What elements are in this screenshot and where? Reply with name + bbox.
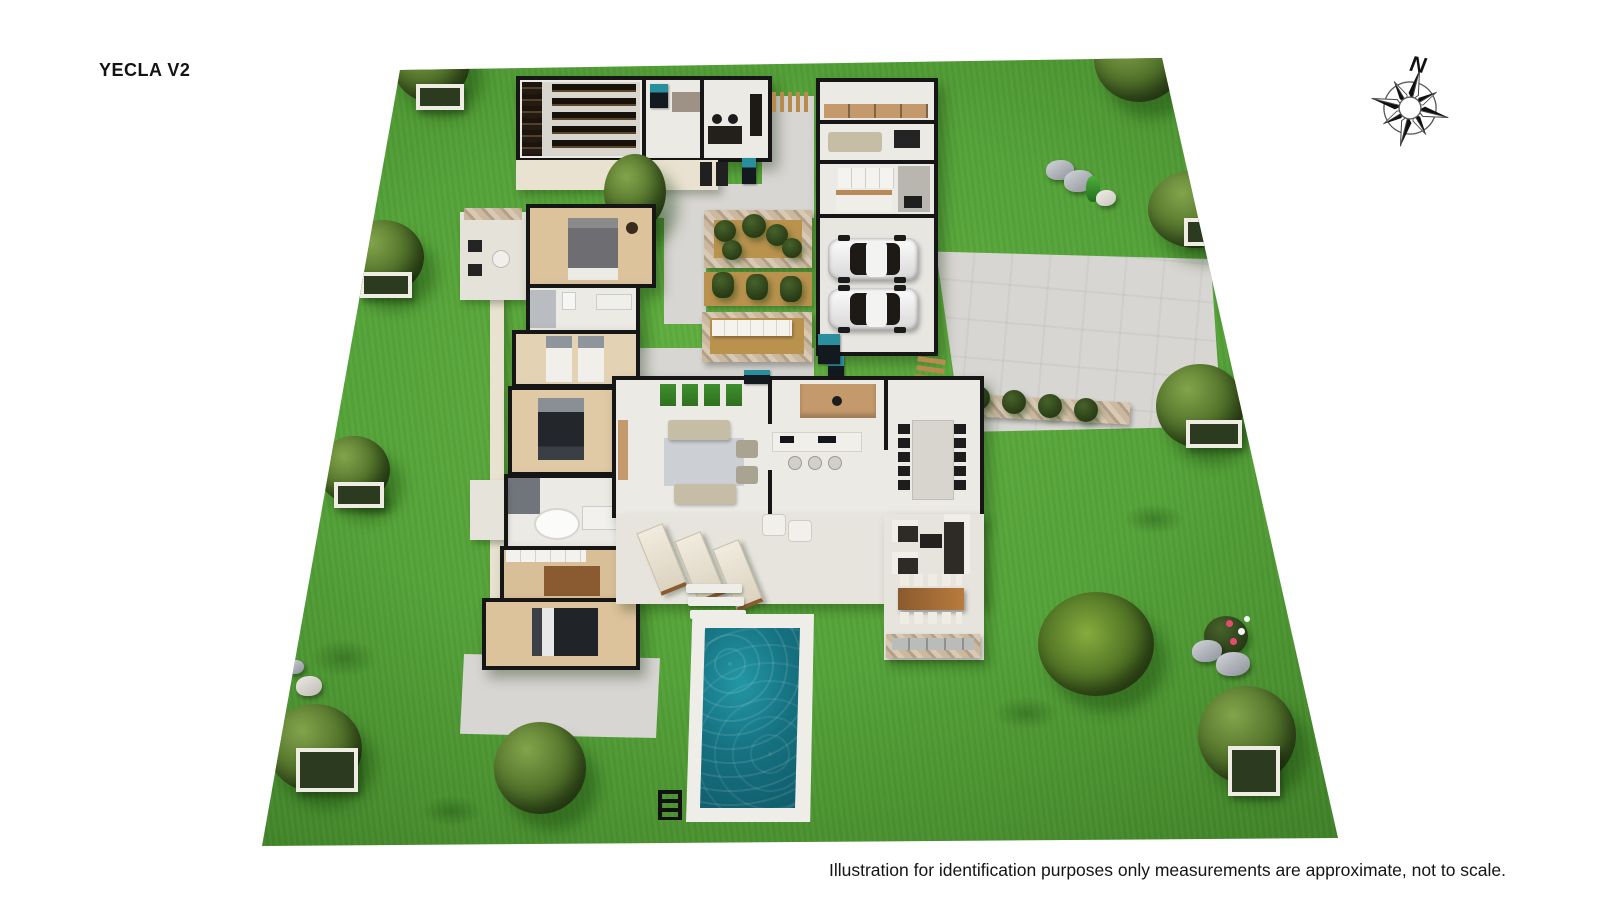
grass-patch [980,690,1072,736]
shower [508,478,540,514]
annex-desk [894,130,920,148]
interior-wall [768,380,772,424]
outdoor-armchair [892,520,918,542]
interior-wall [642,80,646,158]
bush-planter [296,748,358,792]
bar-stool [808,456,822,470]
flower [1238,628,1245,635]
zen-grass-strip [682,384,698,406]
toilet [562,292,576,310]
grass-patch [1112,498,1196,540]
shrub [746,274,768,300]
patio-chair [468,240,482,252]
wooden-gate [772,92,810,112]
office-door [742,158,756,184]
entrance-door [744,370,770,384]
hedge-bush [1002,390,1026,414]
flower [1226,620,1233,627]
tree-planter [416,84,464,110]
patio-table [492,250,510,268]
courtyard-door [818,334,840,364]
zen-grass-strip [726,384,742,406]
planter-bush [742,214,766,238]
twin-bed [578,336,604,382]
bathtub [534,508,580,540]
pool-deck [686,614,814,822]
car-wheel [838,285,850,291]
door-mat [716,162,728,186]
kitchenette-appliance [904,196,922,208]
annex-sofa [828,132,882,152]
island-hob [818,436,836,443]
hedge-bush [1038,394,1062,418]
cellar-door [650,84,668,108]
interior-wall [700,80,704,158]
bedroom-1-bed [568,218,618,280]
car-wheel [894,235,906,241]
office-desk [708,126,742,144]
door-mat [700,162,712,186]
twin-bed [546,336,572,382]
sofa [668,420,730,440]
palm-bush [1038,592,1154,696]
outdoor-dining-chairs [900,574,962,586]
outdoor-dining-chairs [900,612,962,624]
annex-bed [836,190,892,212]
planter-bush [714,220,736,242]
tree-planter [360,272,412,298]
outdoor-dining-table [898,588,964,610]
wine-rack-wall [522,82,542,156]
dining-chairs-left [898,424,910,494]
courtyard-bench [712,320,792,336]
bedroom-3-bed [538,398,584,460]
stepping-stone [686,584,742,593]
vanity [596,294,632,310]
interior-wall [768,470,772,514]
office-cabinet [750,94,762,136]
terrace-chair [762,514,786,536]
bar-stool [828,456,842,470]
bathroom-patio [470,480,504,540]
planter-glass-panels [892,638,974,650]
armchair [736,440,758,458]
wine-racks [552,84,636,154]
outdoor-sofa [944,514,970,574]
bar-stool [788,456,802,470]
office-chair [712,114,722,124]
car-wheel [838,277,850,283]
rock [1216,652,1250,676]
stepping-stone [688,597,744,606]
planter-bush [722,240,742,260]
cooktop [832,396,842,406]
plan-title: YECLA V2 [99,60,190,81]
car [828,288,918,330]
sofa [674,484,736,504]
tree-planter [1186,420,1242,448]
car-wheel [894,277,906,283]
tree-planter [334,482,384,508]
bush-planter [1228,746,1280,796]
zen-grass-strip [704,384,720,406]
coffee-table [694,452,714,472]
tree-planter [1184,218,1236,246]
interior-wall [884,380,888,450]
corridor-runner [544,566,600,596]
flower [1230,638,1237,645]
car-wheel [894,285,906,291]
disclaimer-text: Illustration for identification purposes… [829,860,1506,881]
shower [530,290,556,328]
annex-wardrobe [838,168,894,188]
hall-mat [672,92,702,112]
pool-ladder [658,790,682,820]
car-wheel [838,235,850,241]
car-roof [866,291,888,327]
car-wheel [838,327,850,333]
outdoor-coffee-table [920,534,942,548]
patio-stone-wall [464,208,522,220]
outdoor-armchair [892,552,918,574]
white-stone [1096,190,1116,206]
car-wheel [894,327,906,333]
grass-patch [410,790,494,832]
shrub [780,276,802,302]
path-courtyard-left [664,212,706,324]
zen-grass-strip [660,384,676,406]
rock [286,660,304,674]
shrub [712,272,734,298]
storage-drawers [824,104,928,118]
island-sink [780,436,794,443]
patio-chair [468,264,482,276]
terrace-chair [788,520,812,542]
pool-water [700,628,800,808]
planter-bush [782,238,802,258]
dining-table [912,420,954,500]
car-roof [866,241,888,277]
flower [1244,616,1250,622]
dining-chairs-right [954,424,966,494]
office-chair [728,114,738,124]
armchair [736,466,758,484]
tree [1094,16,1184,102]
white-stone [296,676,322,696]
living-sideboard [618,420,628,480]
hedge-bush [1074,398,1098,422]
bedside-table [626,222,638,234]
car [828,238,918,280]
master-bed [532,608,598,656]
interior-wall [820,120,934,124]
corridor-wardrobe [506,550,586,562]
tree [494,722,586,814]
interior-wall [820,160,934,164]
